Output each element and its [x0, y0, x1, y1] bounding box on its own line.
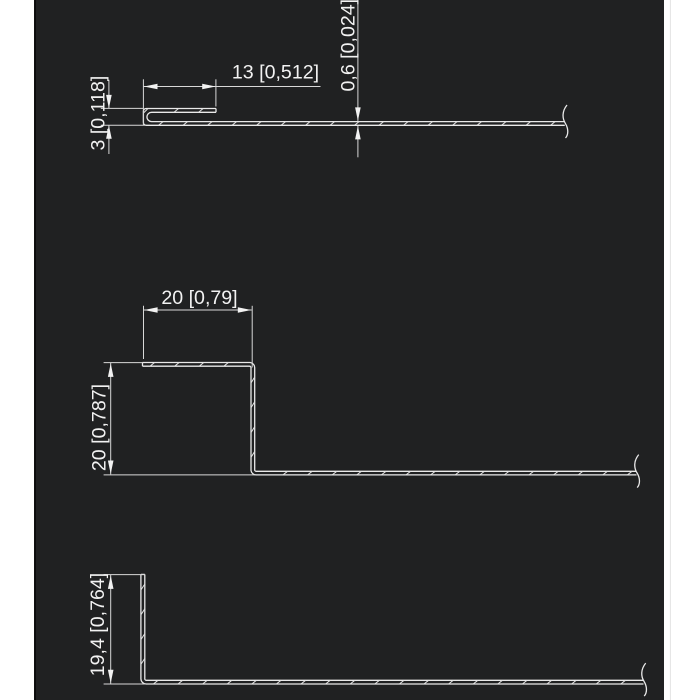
svg-text:3 [0,118]: 3 [0,118]	[88, 76, 110, 151]
svg-text:20 [0,787]: 20 [0,787]	[89, 384, 111, 471]
svg-text:0,6 [0,024]: 0,6 [0,024]	[337, 0, 359, 92]
svg-text:19,4 [0,764]: 19,4 [0,764]	[87, 573, 109, 677]
svg-text:13 [0,512]: 13 [0,512]	[232, 61, 319, 83]
svg-text:20 [0,79]: 20 [0,79]	[161, 287, 237, 309]
